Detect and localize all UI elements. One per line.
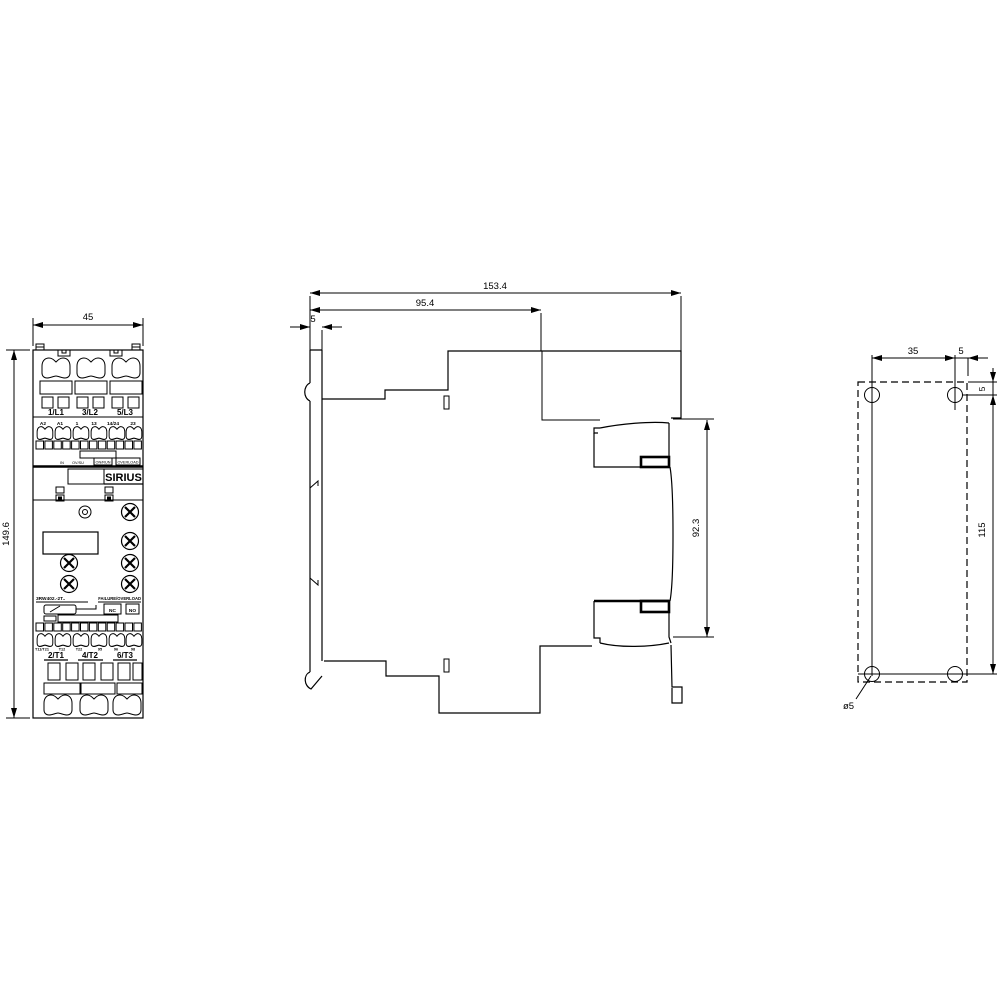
control-terminals: A2 A1 1 13 14/24 23: [36, 421, 142, 449]
technical-drawing-page: 45 149.6: [0, 0, 1000, 1000]
hole-diameter-label: ø5: [843, 701, 854, 712]
control-clamps: [37, 427, 142, 440]
drill-horizontal-dims: 35 5: [872, 346, 988, 361]
model-label: 3RW402.-2T..: [36, 596, 65, 602]
status-strip: IN OV/SU ON/RUN OVERLOAD: [60, 451, 140, 465]
control-panel: [43, 504, 139, 593]
reset-led: [79, 506, 91, 518]
adjust-screw-4: [122, 555, 139, 572]
side-view-dimensions: 153.4 95.4 5 92.3: [290, 281, 714, 637]
terminal-label-6T3: 6/T3: [117, 651, 134, 660]
terminal-label-4T2: 4/T2: [82, 651, 99, 660]
terminal-label-2T1: 2/T1: [48, 651, 65, 660]
drill-vertical-dims: 5 115: [977, 368, 996, 674]
dim-35: 35: [908, 346, 919, 357]
dim-plate-5: 5: [310, 314, 315, 325]
label-23: 23: [130, 421, 136, 427]
dim-5-vertical: 5: [977, 386, 987, 391]
adjust-screw-6: [122, 576, 139, 593]
adjust-screw-1: [122, 504, 139, 521]
din-rail-plate: [305, 350, 322, 689]
dim-height-149-6: 149.6: [1, 522, 12, 546]
led-label-ovsu: OV/SU: [72, 461, 84, 465]
bottom-main-terminals: 2/T1 4/T2 6/T3: [44, 651, 142, 715]
relay-label-nc: NC: [109, 608, 116, 614]
label-13: 13: [91, 421, 97, 427]
lower-terminal-block: [594, 601, 671, 646]
front-view: 45 149.6: [1, 312, 143, 718]
label-95: 95: [98, 648, 102, 652]
drill-view: 35 5 5 115 ø5: [843, 346, 997, 712]
front-device: 1/L1 3/L2 5/L3 A2 A1 1 13 14/24 23: [33, 344, 143, 718]
upper-terminal-block: [594, 422, 669, 467]
dimension-drawing-svg: 45 149.6: [0, 0, 1000, 1000]
top-main-terminals: [40, 358, 142, 408]
front-cover-arc: [670, 467, 673, 601]
dim-span-92-3: 92.3: [691, 519, 702, 538]
led-label-in: IN: [60, 461, 64, 465]
mounting-holes: [865, 388, 963, 682]
status-label: FAILURE/OVERLOAD: [98, 596, 141, 601]
relay-label-no: NO: [129, 608, 136, 614]
adjust-screw-2: [122, 533, 139, 550]
dim-115: 115: [977, 522, 988, 537]
side-device-profile: [305, 350, 682, 713]
bottom-control-terminals: T11/T21 T12 T22 95 96 98: [35, 623, 142, 652]
label-a1: A1: [57, 421, 63, 427]
side-view: 153.4 95.4 5 92.3: [290, 281, 714, 713]
dim-5-horizontal: 5: [958, 346, 963, 357]
rating-label-window: [43, 532, 98, 554]
terminal-label-5L3: 5/L3: [117, 408, 134, 417]
terminal-label-3L2: 3/L2: [82, 408, 99, 417]
dim-width-45: 45: [83, 312, 94, 323]
adjust-screw-3: [61, 555, 78, 572]
led-label-overload: OVERLOAD: [117, 461, 138, 465]
dim-depth-153-4: 153.4: [483, 281, 507, 292]
terminal-label-1L1: 1/L1: [48, 408, 65, 417]
brand-row: SIRIUS: [56, 469, 143, 501]
control-terminal-openings: [36, 441, 141, 449]
model-row: 3RW402.-2T.. FAILURE/OVERLOAD NC NO: [36, 596, 141, 622]
led-label-onrun: ON/RUN: [96, 461, 111, 465]
label-t11-t21: T11/T21: [35, 648, 49, 652]
adjust-screw-5: [61, 576, 78, 593]
brand-sirius: SIRIUS: [105, 472, 142, 484]
dim-depth-95-4: 95.4: [416, 298, 435, 309]
device-outline-dashed: [858, 382, 967, 682]
